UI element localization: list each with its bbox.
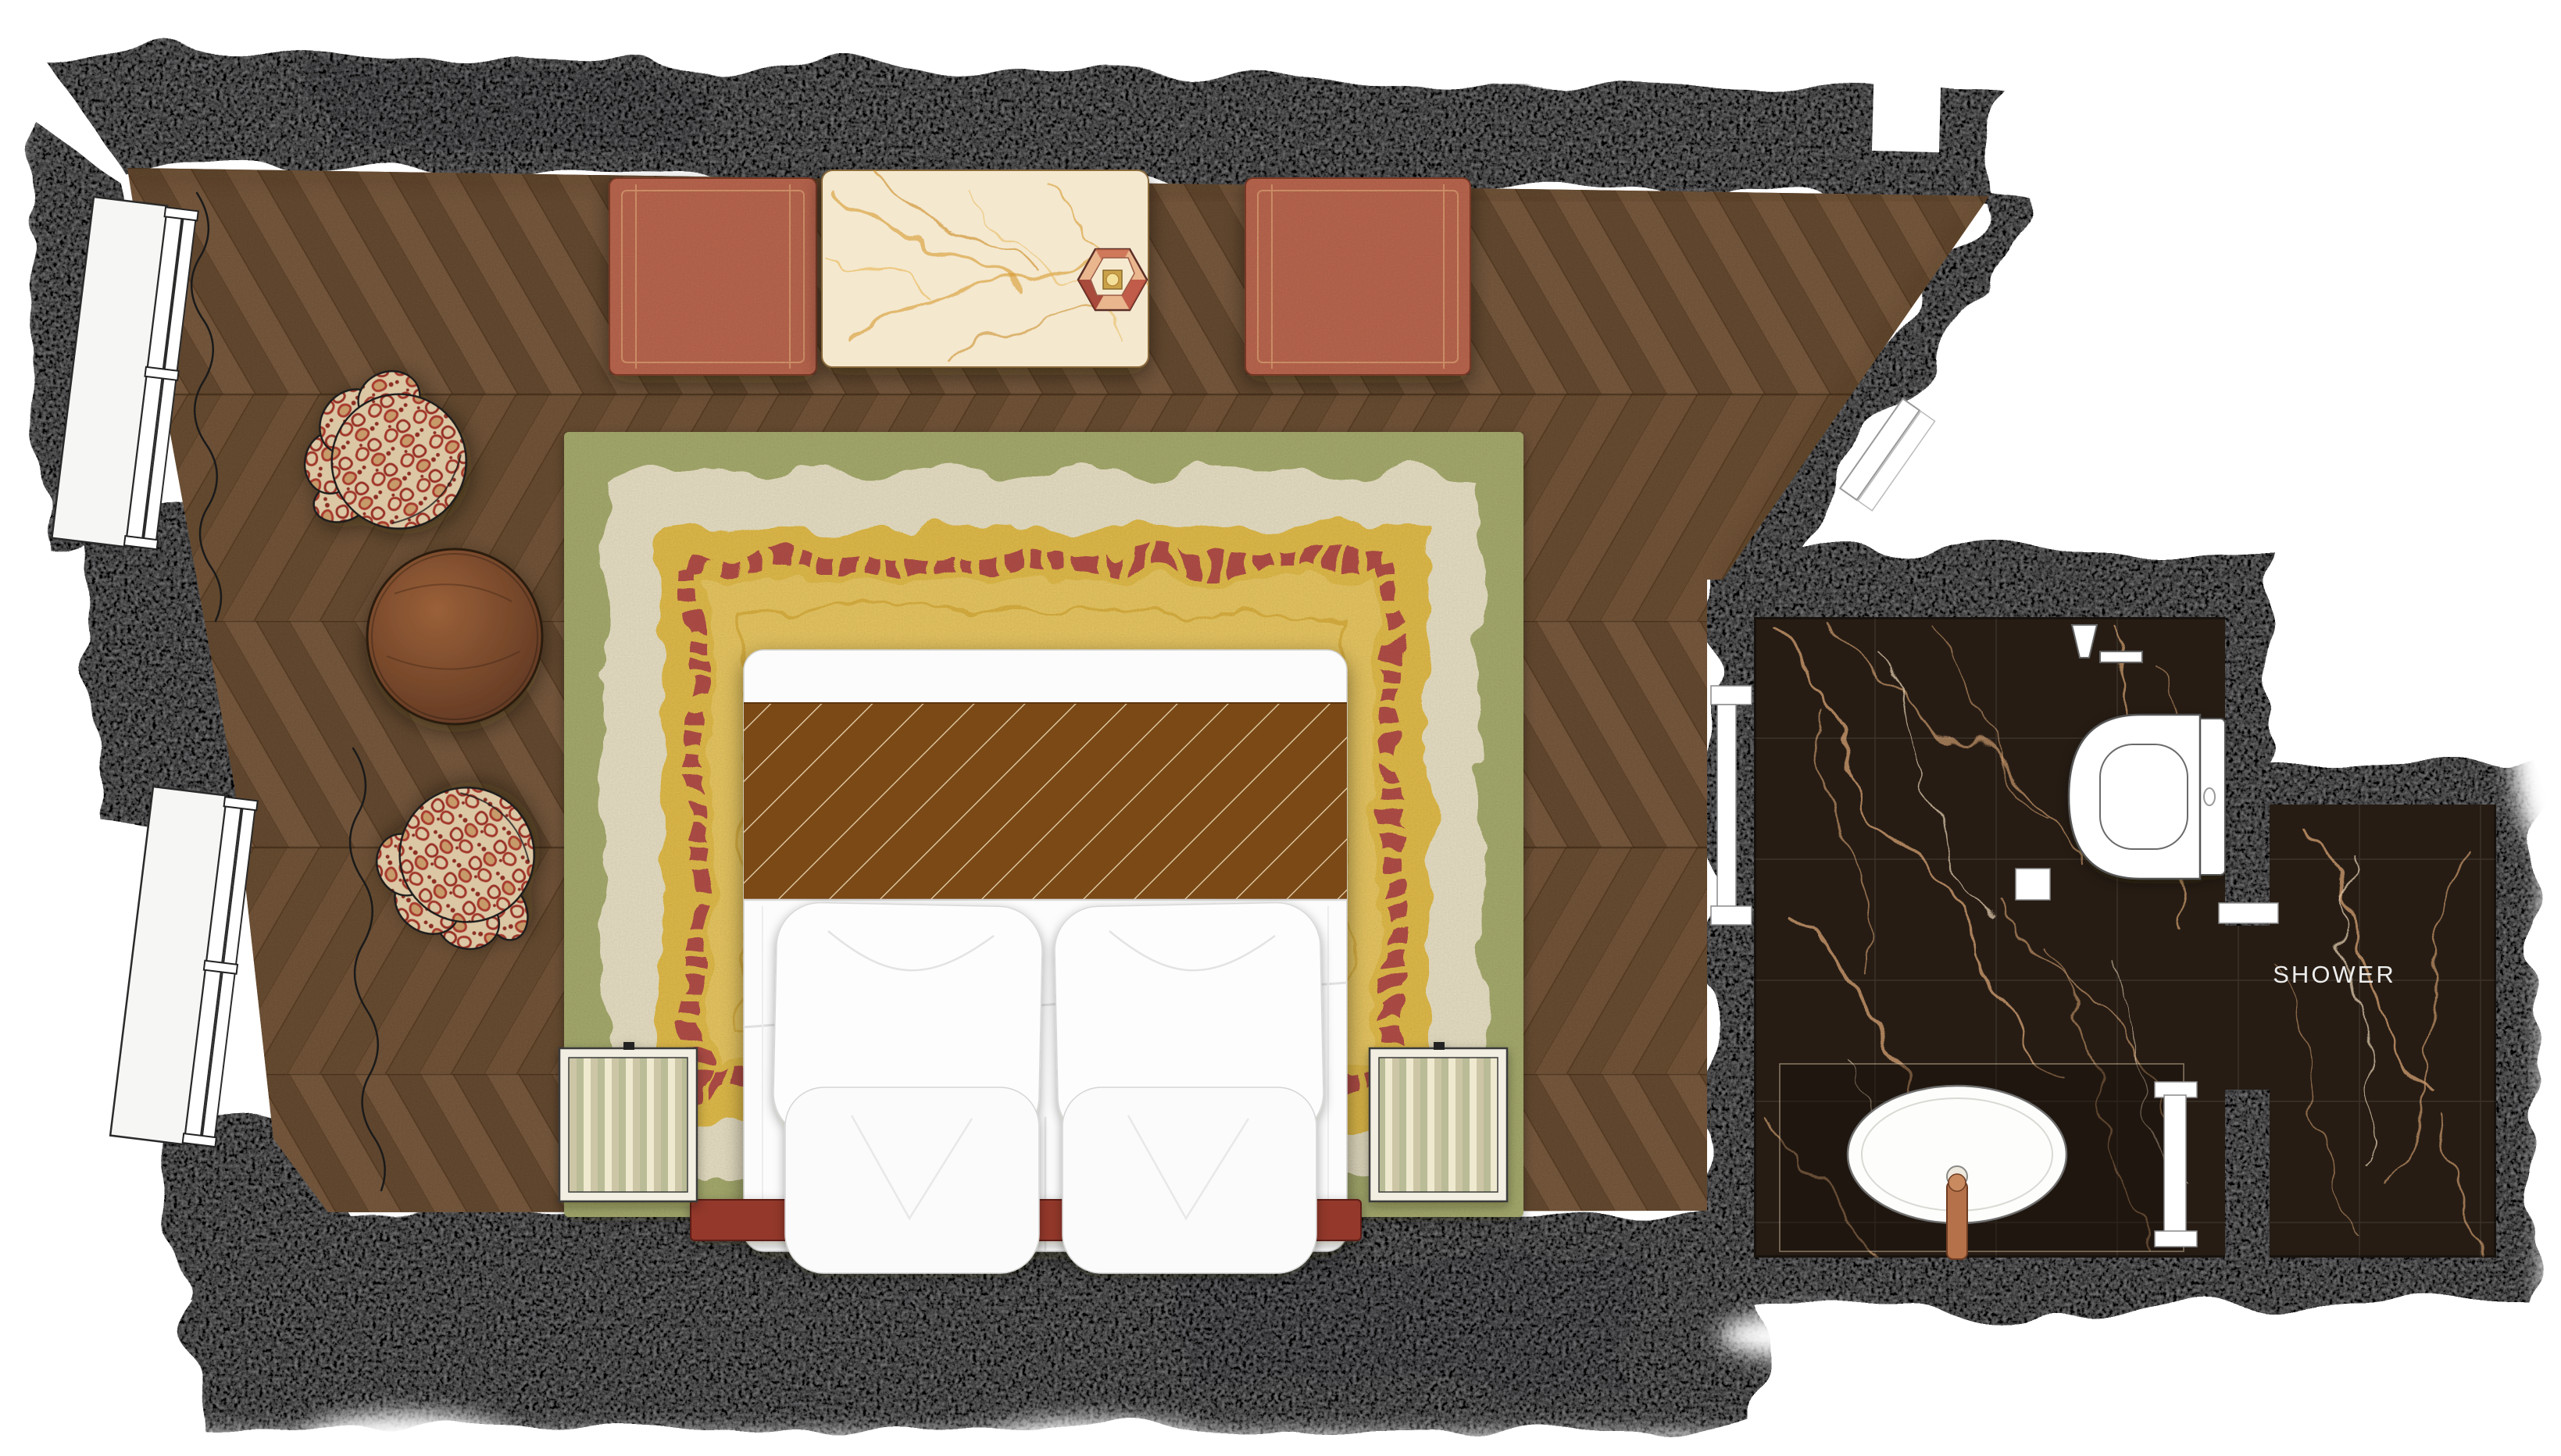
nightstand-left xyxy=(559,1042,697,1201)
wall-blotch-1 xyxy=(313,62,703,156)
pillow-left-pair xyxy=(773,901,1043,1273)
floor-plan-svg: SHOWER xyxy=(0,0,2561,1456)
nightstand-knob xyxy=(623,1042,634,1050)
round-side-table xyxy=(367,549,542,724)
north-wall-notch xyxy=(1872,27,1942,152)
terracotta-bench-right xyxy=(1245,178,1470,375)
floor-plan-canvas: SHOWER xyxy=(0,0,2561,1456)
toilet xyxy=(2069,715,2225,879)
window-lower xyxy=(110,787,258,1148)
shower-label: SHOWER xyxy=(2273,961,2396,988)
vanity-counter xyxy=(1780,1064,2184,1259)
pillow-right-pair xyxy=(1054,901,1324,1273)
nightstand-right xyxy=(1370,1042,1507,1201)
marble-console-table xyxy=(822,170,1148,367)
nightstand-knob xyxy=(1434,1042,1445,1050)
terracotta-bench-left xyxy=(609,178,816,375)
faucet xyxy=(1947,1181,1967,1259)
